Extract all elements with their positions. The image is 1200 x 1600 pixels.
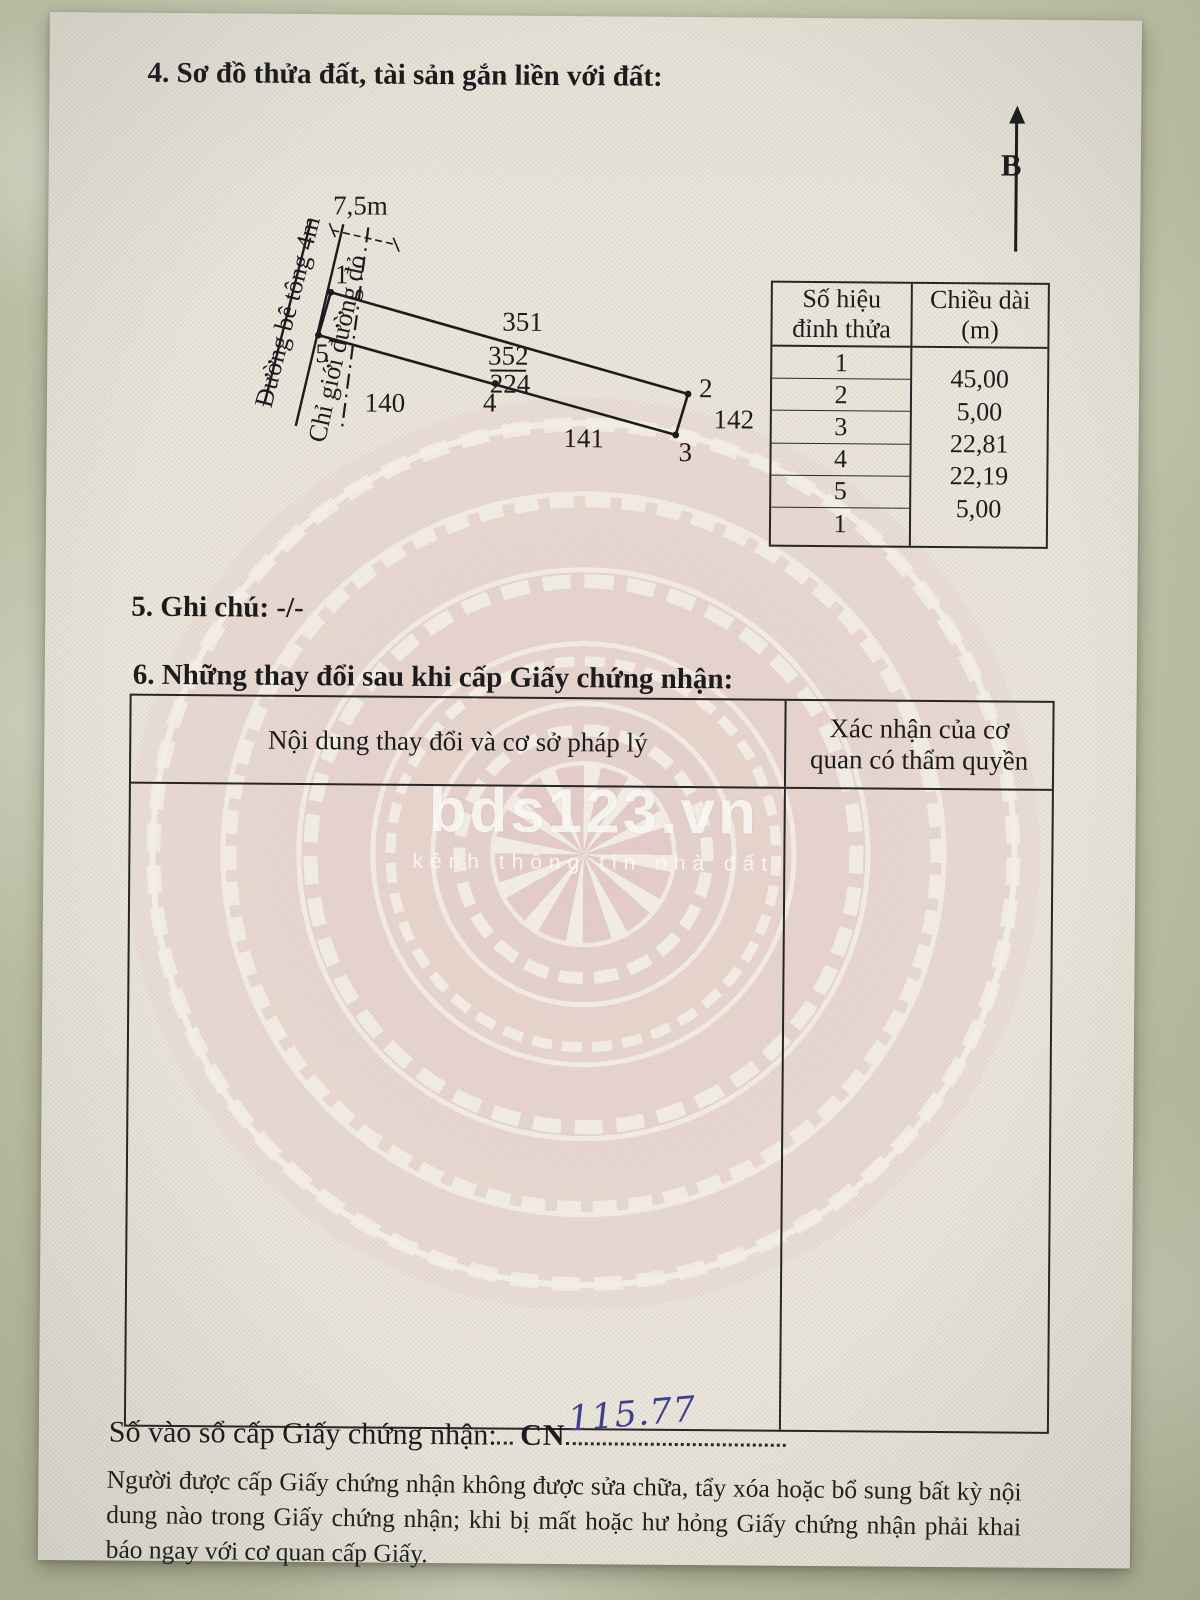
parcel-diagram: 7,5m 1 2 3 4 5 351 352 224 140 141 142 Đ… [206,181,778,495]
table-row: 2 [772,379,910,412]
certificate-page: bds123.vn kênh thông tin nhà đất 4. Sơ đ… [38,12,1142,1569]
footer-note: Người được cấp Giấy chứng nhận không đượ… [105,1462,1021,1580]
table-row: 3 [772,411,910,444]
vertex-label-2: 2 [699,373,713,403]
section6-title: 6. Những thay đổi sau khi cấp Giấy chứng… [133,659,734,697]
changes-table-header: Nội dung thay đổi và cơ sở pháp lý Xác n… [131,696,1053,791]
table-row: 4 [771,443,909,476]
dotted-line: 115.77 [565,1412,785,1447]
north-arrow: B [996,105,1037,255]
length-values: 45,00 5,00 22,81 22,19 5,00 [911,348,1047,526]
vertex-length-table: Số hiệu đỉnh thửa 1 2 3 4 5 1 Chiều dài … [769,281,1050,549]
vertex-label-3: 3 [678,437,692,467]
adjacent-parcel-left: 140 [365,387,406,417]
parcel-area: 224 [490,368,531,398]
dimension-tick [393,238,399,252]
vertex-column-header: Số hiệu đỉnh thửa [772,283,910,348]
length-column: Chiều dài (m) 45,00 5,00 22,81 22,19 5,0… [911,284,1048,547]
changes-table-body [126,784,1052,1432]
section5-label: 5. Ghi chú: [131,591,269,624]
dotted-leader [497,1418,513,1445]
dimension-label: 7,5m [333,190,388,220]
table-row: 5 [771,475,909,508]
vertex-dot [685,391,692,398]
length-value: 45,00 [912,363,1047,396]
section5-title: 5. Ghi chú: -/- [131,591,304,625]
registry-prefix: CN [520,1419,566,1452]
vertex-column: Số hiệu đỉnh thửa 1 2 3 4 5 1 [771,283,913,546]
length-value: 22,19 [911,460,1046,493]
changes-content-header: Nội dung thay đổi và cơ sở pháp lý [131,696,787,787]
page-content: 4. Sơ đồ thửa đất, tài sản gắn liền với … [38,12,1142,1569]
adjacent-parcel-right: 142 [713,404,754,434]
adjacent-parcel-top: 351 [502,307,543,337]
length-value: 22,81 [912,428,1047,461]
north-label: B [1001,147,1022,183]
table-row: 1 [771,508,909,541]
parcel-number: 352 [488,340,529,370]
red-boundary-label: Chỉ giới đường đỏ [302,252,372,445]
changes-content-cell [126,784,786,1430]
length-column-header: Chiều dài (m) [912,284,1047,349]
changes-authority-header: Xác nhận của cơ quan có thẩm quyền [786,701,1053,789]
changes-authority-cell [781,789,1052,1432]
registry-label: Số vào sổ cấp Giấy chứng nhận: [109,1416,497,1452]
length-value: 5,00 [912,395,1047,428]
registry-number-line: Số vào sổ cấp Giấy chứng nhận: CN115.77 [109,1409,786,1455]
section4-title: 4. Sơ đồ thửa đất, tài sản gắn liền với … [147,57,662,94]
adjacent-parcel-bottom: 141 [563,423,604,453]
north-arrow-line [1014,120,1018,252]
section5-value: -/- [276,592,304,624]
length-value: 5,00 [911,492,1046,525]
table-row: 1 [772,347,910,380]
changes-table: Nội dung thay đổi và cơ sở pháp lý Xác n… [124,694,1055,1434]
